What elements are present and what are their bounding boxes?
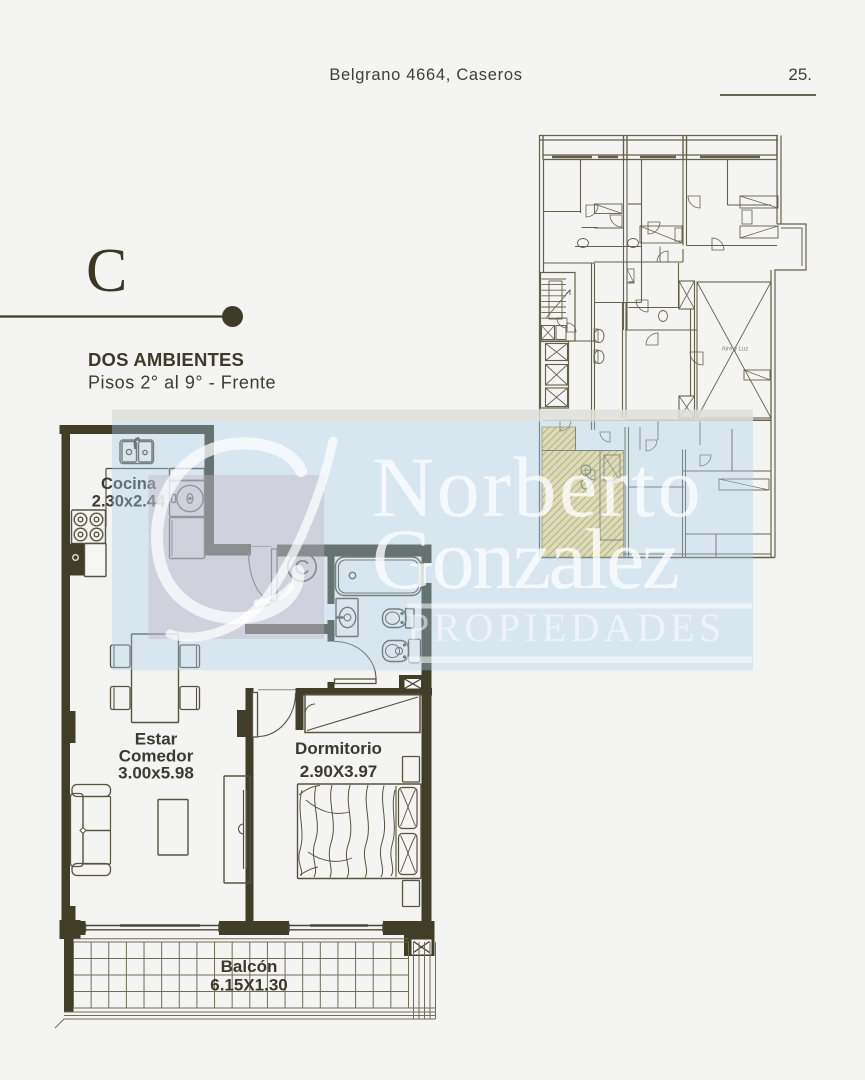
svg-text:C: C: [86, 237, 127, 305]
svg-text:Pisos 2° al 9° - Frente: Pisos 2° al 9° - Frente: [88, 373, 276, 393]
svg-text:3.00x5.98: 3.00x5.98: [118, 764, 194, 783]
svg-text:6.15X1.30: 6.15X1.30: [210, 976, 288, 995]
svg-text:PROPIEDADES: PROPIEDADES: [407, 605, 725, 650]
svg-text:DOS AMBIENTES: DOS AMBIENTES: [88, 349, 244, 370]
svg-text:Belgrano 4664, Caseros: Belgrano 4664, Caseros: [329, 66, 522, 84]
svg-text:2.90X3.97: 2.90X3.97: [300, 762, 378, 781]
svg-text:25.: 25.: [788, 65, 812, 84]
svg-text:Gonzalez: Gonzalez: [372, 511, 678, 607]
svg-text:Dormitorio: Dormitorio: [295, 739, 382, 758]
svg-text:Aire y Luz: Aire y Luz: [722, 347, 749, 353]
svg-text:Balcón: Balcón: [221, 957, 278, 976]
